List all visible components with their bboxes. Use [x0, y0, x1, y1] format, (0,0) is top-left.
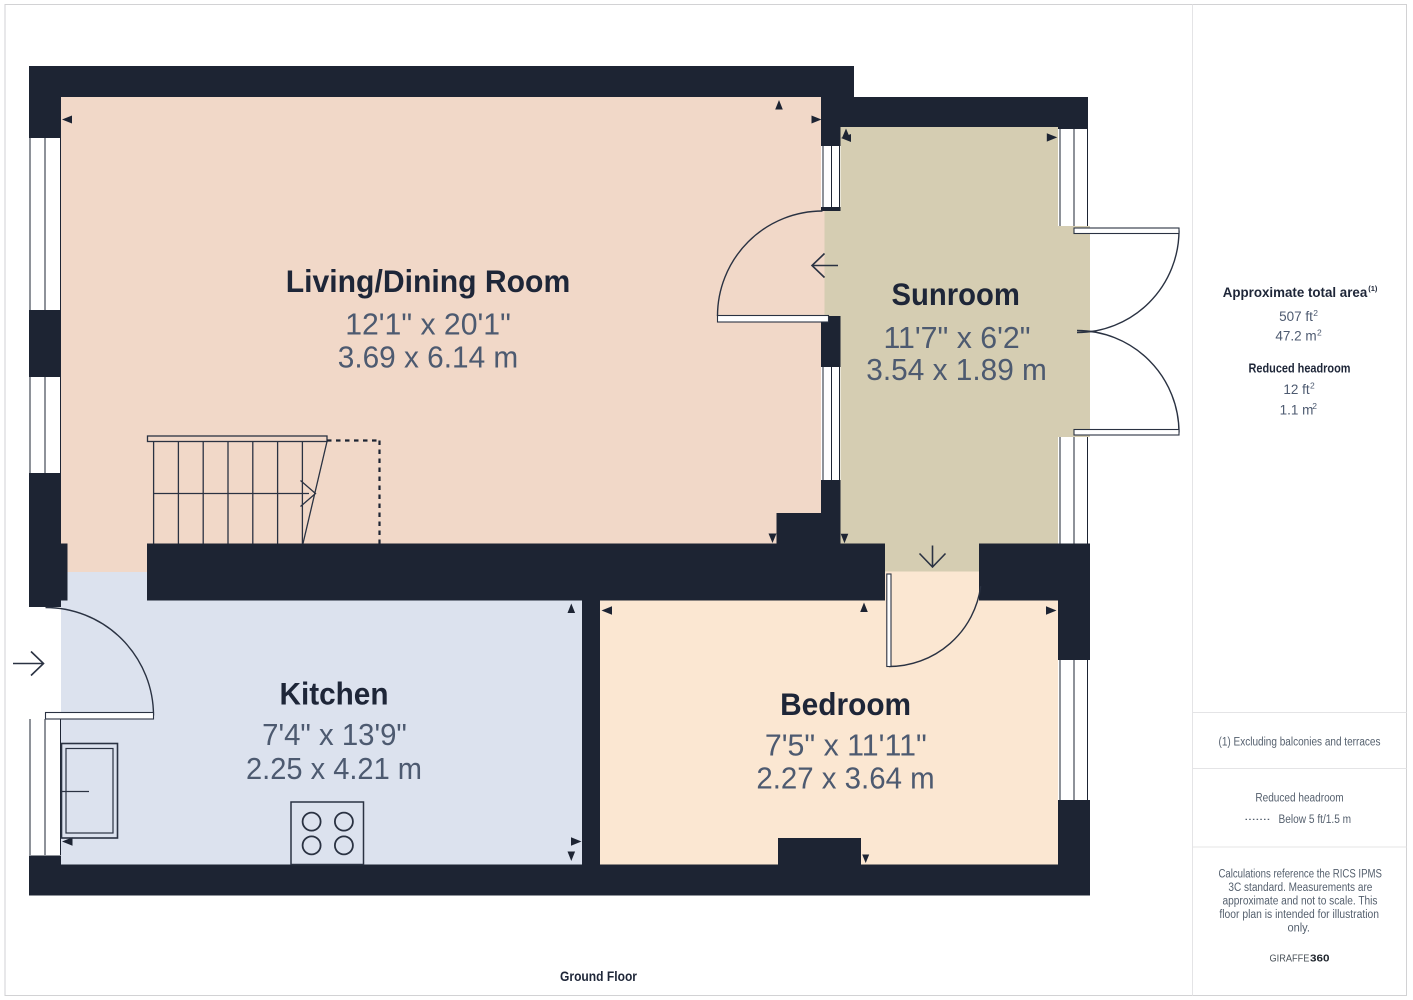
svg-text:Bedroom: Bedroom [780, 686, 911, 722]
svg-text:360: 360 [1310, 954, 1330, 965]
svg-text:Reduced headroom: Reduced headroom [1255, 792, 1343, 804]
svg-text:2.25 x 4.21 m: 2.25 x 4.21 m [246, 751, 422, 786]
svg-text:Ground Floor: Ground Floor [560, 969, 638, 984]
svg-text:2: 2 [1317, 328, 1322, 338]
svg-text:3.54 x 1.89 m: 3.54 x 1.89 m [866, 352, 1047, 387]
svg-text:approximate and not to scale.: approximate and not to scale. This [1223, 896, 1378, 908]
svg-text:47.2 m: 47.2 m [1275, 329, 1316, 344]
svg-text:3C standard. Measurements are: 3C standard. Measurements are [1228, 882, 1372, 894]
svg-text:Sunroom: Sunroom [892, 276, 1020, 312]
svg-text:2: 2 [1312, 401, 1317, 411]
svg-text:floor plan is intended for ill: floor plan is intended for illustration [1219, 909, 1379, 921]
svg-text:12'1" x 20'1": 12'1" x 20'1" [345, 306, 511, 341]
svg-text:2: 2 [1313, 308, 1318, 318]
svg-text:1.1 m: 1.1 m [1280, 402, 1314, 417]
svg-text:GIRAFFE: GIRAFFE [1270, 954, 1310, 965]
svg-text:Below 5 ft/1.5 m: Below 5 ft/1.5 m [1278, 814, 1351, 826]
svg-text:3.69 x 6.14 m: 3.69 x 6.14 m [338, 339, 519, 374]
svg-text:Approximate total area: Approximate total area [1223, 285, 1368, 301]
svg-text:11'7" x 6'2": 11'7" x 6'2" [883, 320, 1030, 355]
svg-text:12 ft: 12 ft [1283, 382, 1310, 397]
svg-text:507 ft: 507 ft [1279, 309, 1313, 324]
svg-text:(1) Excluding balconies and te: (1) Excluding balconies and terraces [1219, 737, 1381, 749]
svg-text:2: 2 [1310, 381, 1315, 391]
svg-text:Kitchen: Kitchen [280, 676, 389, 712]
svg-text:(1): (1) [1368, 284, 1378, 293]
svg-text:7'5" x 11'11": 7'5" x 11'11" [765, 727, 927, 762]
svg-text:7'4" x 13'9": 7'4" x 13'9" [262, 717, 407, 752]
svg-text:only.: only. [1287, 923, 1310, 935]
svg-text:Living/Dining Room: Living/Dining Room [286, 263, 571, 299]
svg-text:2.27 x 3.64 m: 2.27 x 3.64 m [756, 761, 934, 796]
svg-text:Reduced headroom: Reduced headroom [1249, 360, 1351, 375]
svg-text:Calculations reference the RIC: Calculations reference the RICS IPMS [1218, 869, 1382, 881]
